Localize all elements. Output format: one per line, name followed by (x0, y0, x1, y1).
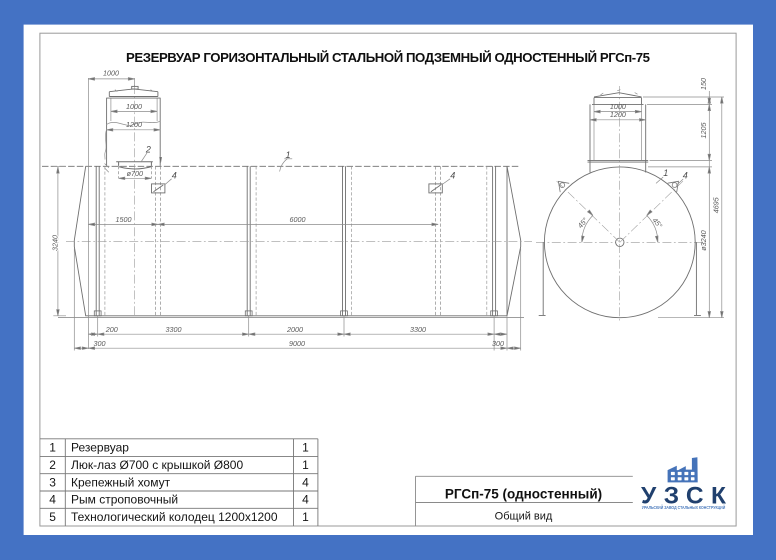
svg-text:3240: 3240 (50, 235, 59, 251)
svg-text:3: 3 (49, 475, 56, 489)
svg-text:1200: 1200 (126, 120, 142, 129)
svg-text:4695: 4695 (711, 196, 720, 213)
svg-text:1000: 1000 (126, 102, 142, 111)
svg-text:Люк-лаз Ø700 с крышкой Ø800: Люк-лаз Ø700 с крышкой Ø800 (71, 458, 243, 472)
svg-text:1200: 1200 (610, 110, 626, 119)
svg-text:200: 200 (105, 325, 118, 334)
svg-text:3300: 3300 (166, 325, 182, 334)
svg-text:3300: 3300 (410, 325, 426, 334)
svg-text:150: 150 (699, 78, 708, 90)
svg-text:Рым строповочный: Рым строповочный (71, 493, 178, 507)
svg-text:2000: 2000 (286, 325, 303, 334)
svg-text:1: 1 (302, 458, 309, 472)
svg-text:4: 4 (683, 170, 688, 180)
svg-text:1: 1 (302, 441, 309, 455)
svg-text:Резервуар: Резервуар (71, 441, 129, 455)
svg-text:300: 300 (94, 339, 106, 348)
svg-text:5: 5 (49, 510, 56, 524)
svg-text:РЕЗЕРВУАР ГОРИЗОНТАЛЬНЫЙ СТАЛЬ: РЕЗЕРВУАР ГОРИЗОНТАЛЬНЫЙ СТАЛЬНОЙ ПОДЗЕМ… (126, 50, 650, 65)
svg-text:4: 4 (450, 170, 455, 180)
svg-text:4: 4 (302, 475, 309, 489)
svg-text:2: 2 (49, 458, 56, 472)
svg-text:Общий вид: Общий вид (495, 511, 553, 523)
svg-text:УРАЛЬСКИЙ ЗАВОД СТАЛЬНЫХ КОНСТ: УРАЛЬСКИЙ ЗАВОД СТАЛЬНЫХ КОНСТРУКЦИЙ (642, 505, 726, 510)
svg-text:6000: 6000 (290, 215, 306, 224)
svg-text:4: 4 (172, 170, 177, 180)
svg-text:РГСп-75 (одностенный): РГСп-75 (одностенный) (445, 487, 602, 502)
svg-text:9000: 9000 (289, 339, 305, 348)
svg-text:1205: 1205 (699, 122, 708, 139)
svg-text:1500: 1500 (116, 215, 132, 224)
svg-text:2: 2 (145, 145, 151, 155)
svg-text:ø3240: ø3240 (699, 230, 708, 250)
svg-text:ø700: ø700 (127, 169, 143, 178)
svg-text:Технологический колодец 1200х1: Технологический колодец 1200х1200 (71, 510, 278, 524)
svg-text:4: 4 (49, 493, 56, 507)
svg-text:1: 1 (302, 510, 309, 524)
svg-text:4: 4 (302, 493, 309, 507)
svg-text:1000: 1000 (103, 69, 119, 78)
svg-text:Крепежный хомут: Крепежный хомут (71, 475, 171, 489)
svg-text:300: 300 (492, 339, 504, 348)
svg-text:1: 1 (663, 168, 668, 178)
svg-text:1: 1 (49, 441, 56, 455)
